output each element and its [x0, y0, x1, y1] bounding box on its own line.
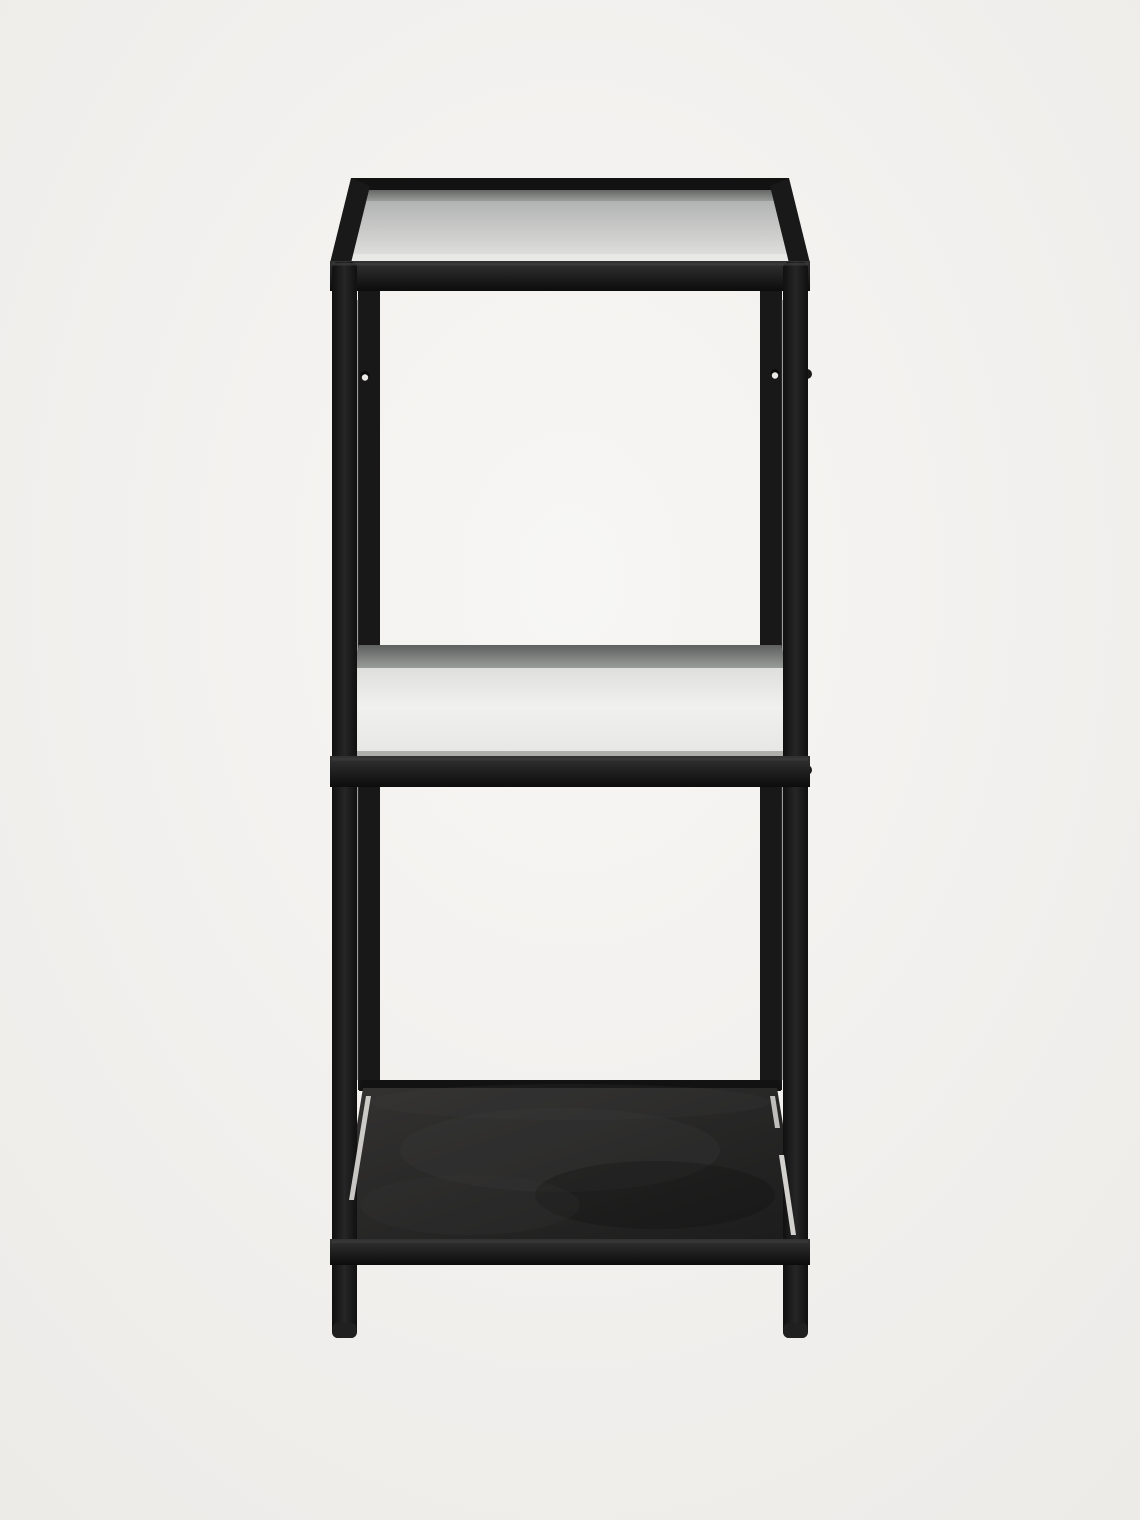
bottom-shelf-mottle-3 [360, 1175, 580, 1235]
back-leg-left [358, 186, 380, 1090]
back-leg-right [760, 186, 782, 1090]
bottom-rail-sheen [332, 1241, 808, 1244]
screw-hole-left [362, 374, 368, 380]
screw-hole-right [772, 372, 778, 378]
foot-cap-right [784, 1323, 808, 1338]
top-glass-smoke-band [357, 189, 783, 201]
product-photo [0, 0, 1140, 1520]
top-rail-sheen [332, 263, 808, 266]
middle-rail-sheen [332, 758, 808, 761]
shelf-unit-illustration [0, 0, 1140, 1520]
middle-glass-smoke-band [353, 645, 787, 668]
middle-front-rail [330, 756, 810, 787]
top-glass-front-edge [339, 254, 801, 261]
top-back-rail [351, 178, 789, 190]
foot-cap-left [333, 1323, 357, 1338]
